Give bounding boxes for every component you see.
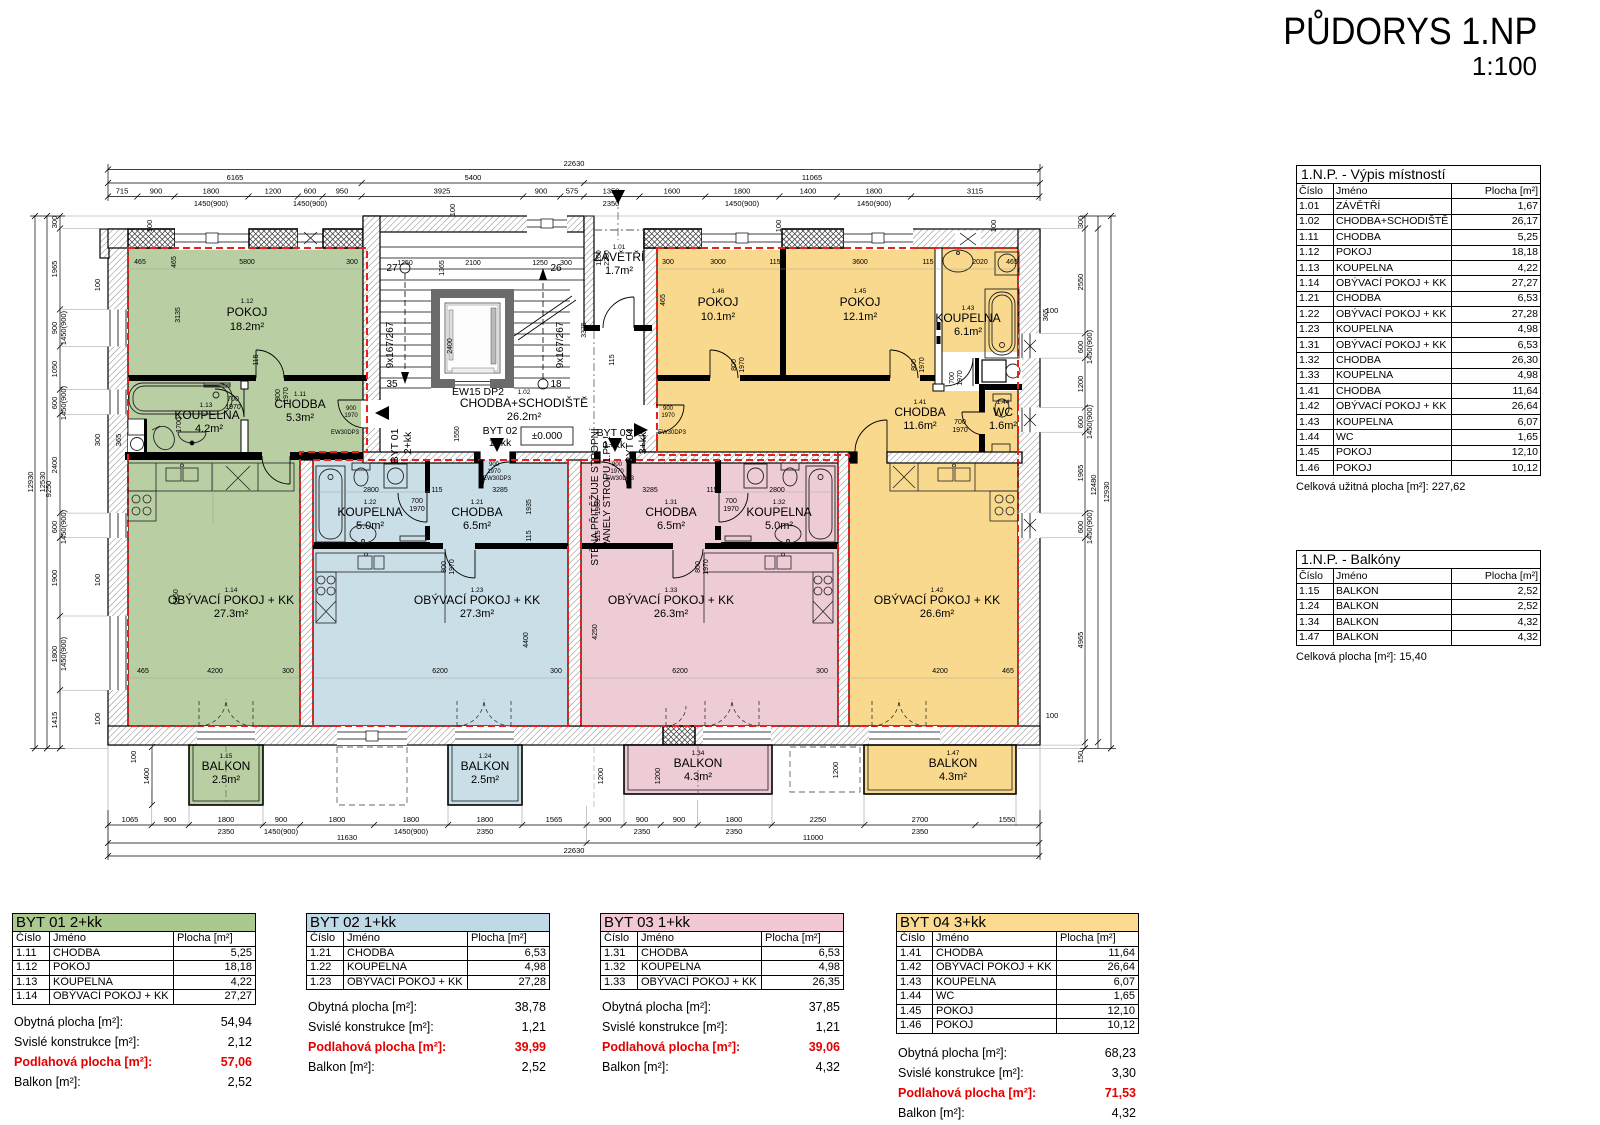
svg-text:465: 465 (660, 294, 667, 306)
svg-text:2020: 2020 (972, 259, 988, 266)
svg-text:1450(900): 1450(900) (1085, 329, 1094, 364)
svg-text:900: 900 (599, 815, 612, 824)
svg-text:4965: 4965 (1076, 632, 1085, 649)
svg-text:WC: WC (993, 405, 1013, 419)
svg-text:2350: 2350 (477, 827, 494, 836)
svg-text:1900: 1900 (50, 570, 59, 587)
svg-text:300: 300 (550, 668, 562, 675)
svg-text:1200: 1200 (653, 768, 662, 785)
svg-text:900: 900 (150, 187, 163, 196)
svg-text:12.1m²: 12.1m² (843, 311, 878, 323)
svg-text:1200: 1200 (596, 768, 605, 785)
svg-text:9x167/267: 9x167/267 (385, 321, 396, 368)
svg-text:1800: 1800 (734, 187, 751, 196)
svg-text:1050: 1050 (50, 361, 59, 378)
svg-text:EW15 DP2: EW15 DP2 (452, 386, 504, 398)
svg-text:100: 100 (93, 713, 102, 726)
svg-text:115: 115 (706, 487, 717, 494)
svg-text:35: 35 (386, 379, 398, 390)
svg-text:2350: 2350 (218, 827, 235, 836)
svg-text:900: 900 (612, 462, 623, 468)
svg-text:600: 600 (1076, 521, 1085, 534)
svg-text:115: 115 (431, 487, 442, 494)
svg-text:1970: 1970 (225, 404, 241, 411)
svg-text:6.5m²: 6.5m² (657, 520, 685, 532)
svg-text:6200: 6200 (432, 668, 448, 675)
svg-text:115: 115 (922, 259, 933, 266)
svg-text:1.7m²: 1.7m² (605, 265, 633, 277)
svg-text:4400: 4400 (523, 632, 530, 648)
svg-text:1965: 1965 (50, 261, 59, 278)
svg-text:1970: 1970 (952, 427, 968, 434)
svg-text:POKOJ: POKOJ (698, 295, 739, 309)
svg-text:900: 900 (535, 187, 548, 196)
svg-text:3600: 3600 (852, 259, 868, 266)
svg-text:900: 900 (275, 815, 288, 824)
svg-text:4200: 4200 (207, 668, 223, 675)
svg-text:600: 600 (1076, 341, 1085, 354)
svg-text:900: 900 (164, 815, 177, 824)
svg-text:1200: 1200 (265, 187, 282, 196)
svg-text:900: 900 (489, 462, 500, 468)
svg-text:300: 300 (560, 260, 572, 267)
svg-text:11065: 11065 (802, 173, 822, 182)
svg-text:3285: 3285 (642, 487, 658, 494)
svg-text:1.46: 1.46 (712, 288, 725, 295)
svg-text:12930: 12930 (1102, 482, 1111, 503)
svg-text:1565: 1565 (546, 815, 563, 824)
svg-text:100: 100 (1046, 711, 1059, 720)
svg-text:5800: 5800 (239, 259, 255, 266)
svg-text:900: 900 (663, 406, 674, 412)
svg-text:115: 115 (595, 530, 602, 541)
svg-text:18: 18 (550, 379, 562, 390)
svg-text:1800: 1800 (203, 187, 220, 196)
svg-text:1450(900): 1450(900) (59, 310, 68, 345)
svg-text:1450(900): 1450(900) (59, 385, 68, 420)
svg-text:465: 465 (137, 668, 149, 675)
svg-text:1970: 1970 (409, 506, 425, 513)
svg-text:2800: 2800 (769, 487, 785, 494)
svg-text:1365: 1365 (439, 260, 446, 276)
svg-text:POKOJ: POKOJ (840, 295, 881, 309)
svg-text:800: 800 (441, 561, 448, 573)
svg-text:5.3m²: 5.3m² (286, 412, 314, 424)
svg-text:4200: 4200 (932, 668, 948, 675)
svg-text:BALKON: BALKON (461, 759, 510, 773)
svg-text:1935: 1935 (526, 499, 533, 515)
svg-text:1970: 1970 (723, 506, 739, 513)
svg-text:OBÝVACÍ POKOJ + KK: OBÝVACÍ POKOJ + KK (168, 592, 294, 607)
svg-text:700: 700 (411, 498, 423, 505)
svg-text:1450(900): 1450(900) (857, 199, 892, 208)
svg-text:CHODBA: CHODBA (645, 505, 696, 519)
svg-text:11000: 11000 (803, 833, 823, 842)
svg-text:3925: 3925 (434, 187, 451, 196)
svg-text:1250: 1250 (532, 260, 548, 267)
svg-text:POKOJ: POKOJ (227, 305, 268, 319)
svg-text:3+kk: 3+kk (637, 431, 649, 454)
svg-text:1550: 1550 (999, 815, 1016, 824)
svg-text:1965: 1965 (1076, 465, 1085, 482)
svg-text:BALKON: BALKON (674, 756, 723, 770)
svg-text:800: 800 (911, 359, 918, 371)
svg-text:6200: 6200 (672, 668, 688, 675)
svg-text:465: 465 (1006, 259, 1018, 266)
svg-text:2550: 2550 (1076, 274, 1085, 291)
svg-text:1450(900): 1450(900) (59, 636, 68, 671)
svg-text:1970: 1970 (487, 469, 501, 475)
svg-text:1350: 1350 (603, 187, 620, 196)
svg-text:4.3m²: 4.3m² (939, 771, 967, 783)
svg-text:1415: 1415 (50, 712, 59, 729)
svg-text:950: 950 (336, 187, 349, 196)
svg-text:300: 300 (282, 668, 294, 675)
svg-text:4.3m²: 4.3m² (684, 771, 712, 783)
svg-text:800: 800 (275, 389, 282, 401)
svg-text:EW30DP3: EW30DP3 (331, 430, 360, 436)
svg-text:6.5m²: 6.5m² (463, 520, 491, 532)
svg-text:1065: 1065 (122, 815, 139, 824)
svg-text:5.0m²: 5.0m² (356, 520, 384, 532)
svg-text:CHODBA: CHODBA (451, 505, 502, 519)
svg-text:OBÝVACÍ POKOJ + KK: OBÝVACÍ POKOJ + KK (414, 592, 540, 607)
svg-text:700: 700 (725, 498, 737, 505)
svg-text:1450(900): 1450(900) (725, 199, 760, 208)
svg-text:9x167/267: 9x167/267 (555, 321, 566, 368)
svg-text:1450(900): 1450(900) (293, 199, 328, 208)
svg-text:1.12: 1.12 (241, 298, 254, 305)
svg-text:KOUPELNA: KOUPELNA (337, 505, 402, 519)
svg-text:±0.000: ±0.000 (532, 431, 563, 442)
svg-text:715: 715 (116, 187, 129, 196)
svg-text:2100: 2100 (465, 260, 481, 267)
svg-text:1970: 1970 (610, 469, 624, 475)
svg-text:465: 465 (171, 256, 178, 268)
svg-text:EW30DP3: EW30DP3 (658, 430, 687, 436)
svg-text:PANELY STROPU 1.PP !: PANELY STROPU 1.PP ! (602, 436, 613, 548)
svg-text:300: 300 (93, 434, 102, 447)
svg-text:1970: 1970 (661, 413, 675, 419)
svg-text:1550: 1550 (454, 426, 461, 442)
svg-text:11.6m²: 11.6m² (903, 420, 937, 432)
svg-text:300: 300 (1076, 216, 1085, 229)
svg-text:1450(900): 1450(900) (1085, 404, 1094, 439)
svg-text:STĚNA PŘITĚŽUJE STROPNÍ: STĚNA PŘITĚŽUJE STROPNÍ (588, 428, 601, 565)
svg-text:2+kk: 2+kk (402, 431, 414, 454)
svg-text:1800: 1800 (866, 187, 883, 196)
svg-text:2400: 2400 (50, 457, 59, 474)
svg-text:300: 300 (816, 668, 828, 675)
svg-text:5.0m²: 5.0m² (765, 520, 793, 532)
svg-text:27.3m²: 27.3m² (460, 608, 495, 620)
svg-text:100: 100 (1046, 306, 1059, 315)
svg-text:115: 115 (609, 354, 616, 365)
svg-text:BYT 02: BYT 02 (483, 425, 518, 437)
svg-text:600: 600 (50, 521, 59, 534)
svg-text:EW30DP3: EW30DP3 (483, 476, 512, 482)
svg-text:900: 900 (636, 815, 649, 824)
svg-text:700: 700 (949, 372, 956, 384)
svg-text:1450(900): 1450(900) (394, 827, 429, 836)
svg-text:1.02: 1.02 (518, 389, 531, 396)
svg-text:26.2m²: 26.2m² (507, 411, 542, 423)
svg-text:1800: 1800 (403, 815, 420, 824)
svg-text:CHODBA: CHODBA (894, 405, 945, 419)
svg-text:100: 100 (145, 220, 154, 233)
svg-text:1.6m²: 1.6m² (989, 420, 1017, 432)
svg-text:2350: 2350 (726, 827, 743, 836)
svg-text:1450(900): 1450(900) (1085, 509, 1094, 544)
svg-text:2350: 2350 (912, 827, 929, 836)
svg-text:1800: 1800 (329, 815, 346, 824)
svg-text:900: 900 (346, 406, 357, 412)
svg-text:1450(900): 1450(900) (194, 199, 229, 208)
svg-text:ZÁVĚTŘÍ: ZÁVĚTŘÍ (594, 249, 645, 264)
svg-text:2250: 2250 (810, 815, 827, 824)
svg-text:700: 700 (227, 396, 239, 403)
svg-text:365: 365 (114, 434, 123, 447)
svg-text:OBÝVACÍ POKOJ + KK: OBÝVACÍ POKOJ + KK (608, 592, 734, 607)
svg-text:OBÝVACÍ POKOJ + KK: OBÝVACÍ POKOJ + KK (874, 592, 1000, 607)
svg-text:1970: 1970 (919, 357, 926, 373)
svg-text:18.2m²: 18.2m² (230, 321, 265, 333)
svg-text:2350: 2350 (603, 199, 620, 208)
svg-text:4.2m²: 4.2m² (195, 423, 223, 435)
svg-text:1400: 1400 (142, 768, 151, 785)
svg-text:12480: 12480 (1089, 475, 1098, 496)
svg-text:100: 100 (774, 220, 783, 233)
svg-text:1450(900): 1450(900) (59, 509, 68, 544)
svg-text:575: 575 (566, 187, 579, 196)
svg-text:27.3m²: 27.3m² (214, 608, 249, 620)
svg-text:1935: 1935 (595, 499, 602, 515)
svg-text:600: 600 (50, 397, 59, 410)
svg-text:100: 100 (93, 279, 102, 292)
svg-text:1.45: 1.45 (854, 288, 867, 295)
svg-text:600: 600 (1076, 416, 1085, 429)
svg-text:22630: 22630 (564, 159, 585, 168)
svg-text:9250: 9250 (44, 481, 53, 498)
svg-text:4250: 4250 (592, 624, 599, 640)
svg-text:2800: 2800 (363, 487, 379, 494)
svg-text:100: 100 (93, 574, 102, 587)
svg-text:BYT 04: BYT 04 (624, 428, 636, 463)
svg-text:KOUPELNA: KOUPELNA (935, 311, 1000, 325)
svg-text:1450(900): 1450(900) (264, 827, 299, 836)
svg-text:12930: 12930 (26, 472, 35, 493)
svg-text:1800: 1800 (218, 815, 235, 824)
svg-text:1970: 1970 (703, 559, 710, 575)
svg-text:100: 100 (448, 204, 457, 217)
svg-text:2.5m²: 2.5m² (471, 774, 499, 786)
svg-text:115: 115 (526, 530, 533, 541)
svg-text:2.5m²: 2.5m² (212, 774, 240, 786)
svg-text:900: 900 (50, 322, 59, 335)
svg-text:465: 465 (134, 259, 146, 266)
svg-text:1400: 1400 (800, 187, 817, 196)
svg-text:1600: 1600 (664, 187, 681, 196)
svg-text:115: 115 (769, 259, 780, 266)
svg-text:1970: 1970 (344, 413, 358, 419)
svg-text:1+kk: 1+kk (489, 437, 512, 449)
svg-text:150: 150 (1076, 751, 1085, 764)
svg-text:BALKON: BALKON (929, 756, 978, 770)
svg-text:1970: 1970 (739, 357, 746, 373)
svg-text:BYT 01: BYT 01 (389, 428, 401, 463)
svg-text:900: 900 (673, 815, 686, 824)
svg-text:10.1m²: 10.1m² (701, 311, 736, 323)
svg-text:100: 100 (129, 751, 138, 764)
svg-text:5400: 5400 (465, 173, 482, 182)
svg-text:1800: 1800 (726, 815, 743, 824)
svg-text:2350: 2350 (634, 827, 651, 836)
svg-text:22630: 22630 (564, 846, 585, 855)
svg-text:KOUPELNA: KOUPELNA (746, 505, 811, 519)
svg-text:465: 465 (1002, 668, 1014, 675)
svg-text:3135: 3135 (175, 307, 182, 323)
svg-text:300: 300 (50, 216, 59, 229)
svg-text:3375: 3375 (581, 322, 588, 338)
svg-text:1200: 1200 (1076, 376, 1085, 393)
svg-text:6450: 6450 (173, 589, 180, 605)
svg-text:300: 300 (662, 259, 674, 266)
svg-text:2400: 2400 (447, 338, 454, 354)
svg-text:6165: 6165 (227, 173, 244, 182)
svg-text:1800: 1800 (50, 646, 59, 663)
svg-text:1800: 1800 (477, 815, 494, 824)
svg-text:EW30DP3: EW30DP3 (606, 476, 635, 482)
svg-text:800: 800 (731, 359, 738, 371)
svg-text:600: 600 (304, 187, 317, 196)
svg-text:1970: 1970 (283, 387, 290, 403)
svg-text:6.1m²: 6.1m² (954, 326, 982, 338)
svg-text:800: 800 (695, 561, 702, 573)
svg-text:26.3m²: 26.3m² (654, 608, 689, 620)
svg-text:115: 115 (253, 354, 260, 365)
svg-text:11630: 11630 (337, 833, 357, 842)
svg-text:300: 300 (346, 259, 358, 266)
svg-text:700: 700 (954, 419, 966, 426)
svg-text:3000: 3000 (710, 259, 726, 266)
svg-text:3115: 3115 (967, 187, 983, 196)
svg-text:1250: 1250 (397, 260, 413, 267)
svg-text:1970: 1970 (449, 559, 456, 575)
svg-text:26.6m²: 26.6m² (920, 608, 955, 620)
svg-text:BALKON: BALKON (202, 759, 251, 773)
svg-text:2700: 2700 (912, 815, 929, 824)
svg-text:3285: 3285 (492, 487, 508, 494)
svg-text:1200: 1200 (831, 762, 840, 779)
svg-text:1700: 1700 (176, 417, 183, 433)
svg-text:1970: 1970 (957, 370, 964, 386)
svg-text:100: 100 (989, 220, 998, 233)
